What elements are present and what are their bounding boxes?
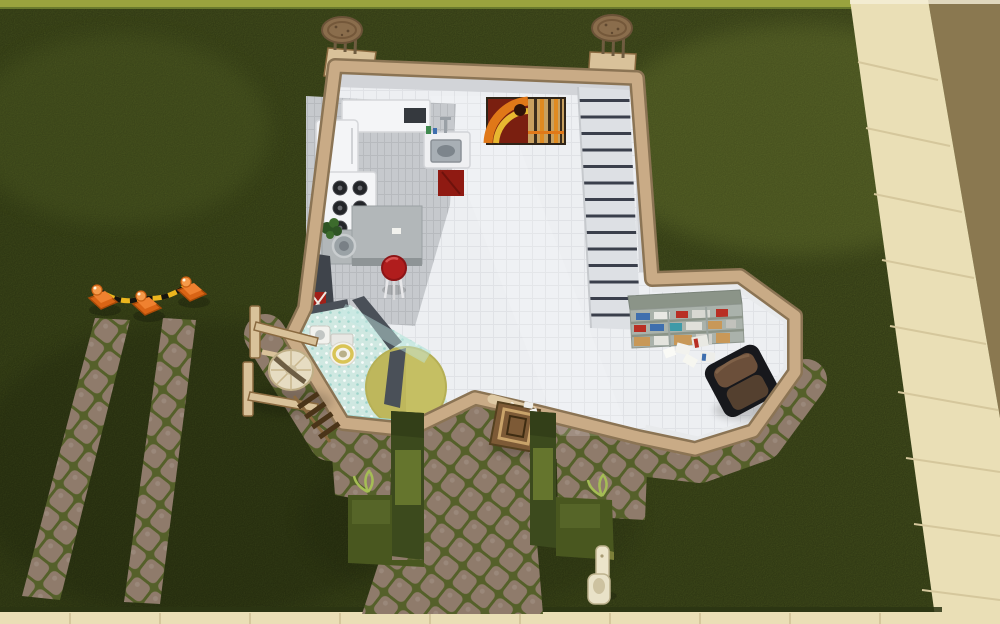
game-viewport — [0, 0, 1000, 624]
lot-edge-top-line — [0, 7, 1000, 9]
kitchen-island[interactable] — [352, 206, 422, 264]
faucet-icon — [444, 118, 447, 133]
wall-painting[interactable] — [486, 97, 566, 145]
toilet[interactable] — [330, 334, 356, 366]
bookshelf[interactable] — [628, 290, 744, 348]
sidewalk-top-edge — [850, 0, 1000, 4]
lot-scene — [0, 0, 1000, 624]
microwave[interactable] — [404, 108, 426, 123]
sponge — [392, 228, 401, 234]
wicker-seat — [269, 350, 313, 390]
soap-bottle-icon — [426, 126, 431, 134]
